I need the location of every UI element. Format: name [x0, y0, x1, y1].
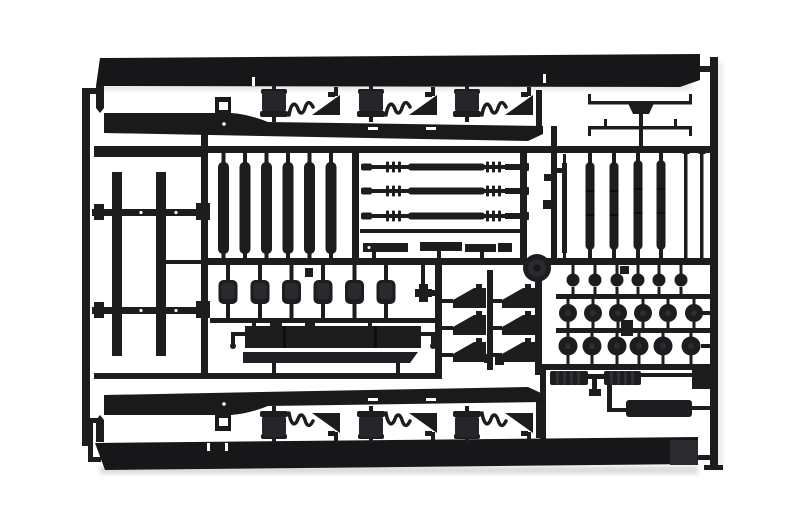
wheel-r3-c6-hub [688, 343, 694, 349]
wheel-r1-c1 [567, 274, 580, 287]
spring-3-stem-bottom [265, 252, 269, 260]
flat-tool-3 [465, 244, 496, 252]
runner-muffler [540, 364, 712, 370]
blade-tip-stem [536, 90, 542, 126]
wheel-r2-c2-hub [590, 310, 596, 316]
rail-d-block-2 [543, 200, 552, 209]
spring-1-stem-bottom [222, 252, 226, 260]
tool-stem-3 [480, 252, 484, 258]
hang-cup-3-foot [465, 116, 469, 122]
bottom-triangle-2 [409, 413, 437, 433]
bottom-squiggle-1 [289, 413, 313, 425]
flat-tool-2 [420, 242, 462, 251]
runner-wheels-a [556, 294, 712, 299]
muffler-ribbed-1 [550, 371, 588, 385]
cup-1-stem-bottom [226, 303, 230, 318]
bottom-strip-stem [697, 455, 710, 460]
wheel-r2-c4-hub [640, 310, 646, 316]
cup-5-stem-top [353, 265, 357, 281]
fender-top-window [219, 102, 228, 110]
vspring-2-seg-a [610, 190, 619, 192]
wheel-r2-c4-stem-bottom [642, 322, 645, 329]
rod-3-ring-e [492, 211, 495, 222]
wheel-grid-stem-right-1 [702, 311, 710, 315]
rail-d [551, 126, 557, 265]
wheel-grid-block [621, 320, 633, 336]
cups-runner-stem-2 [368, 323, 372, 328]
wheel-r1-c3-stem-top [616, 264, 619, 274]
rod-3-ring-c [398, 211, 401, 222]
hang-triangle-2-stem [431, 87, 435, 96]
wheel-r3-c5-stem-bottom [662, 355, 665, 365]
fender-bottom-window [219, 418, 228, 426]
rod-3-cap-left [361, 213, 372, 220]
rod-2-cap-left [361, 188, 372, 195]
cup-6-stem-bottom [384, 303, 388, 318]
muffler-l-runner-v [607, 385, 612, 412]
hull-hook-right-b [431, 332, 435, 344]
rod-1-ring-d [486, 162, 489, 173]
hull-upper-tab-1 [270, 321, 282, 327]
axle-bar-1 [112, 172, 122, 356]
rod-2-ring-e [492, 186, 495, 197]
muffler-2-rib-d [631, 371, 634, 385]
vspring-4-body [657, 160, 666, 250]
wheel-r1-c2 [589, 274, 602, 287]
runner-mid [201, 258, 712, 265]
muffler-1-rib-c [570, 371, 573, 385]
hang-triangle-1-nub [328, 92, 335, 97]
muffler-2-rib-b [617, 371, 620, 385]
fender-top-slit-1 [368, 127, 378, 130]
rod-3-ring-f [498, 211, 501, 222]
wheel-r1-c5-stem-top [658, 264, 661, 274]
hull-lower-stem-2 [396, 363, 400, 374]
pin-mark-1 [139, 211, 142, 214]
bottom-squiggle-2 [386, 413, 410, 425]
wheel-r2-c1-stem-bottom [567, 322, 570, 329]
t-tick-1 [588, 94, 591, 102]
wheel-r1-c3 [611, 274, 624, 287]
spring-6-body [326, 162, 337, 254]
wedge-2-stem-left [442, 326, 453, 330]
bottom-triangle-1-stem [334, 432, 338, 441]
vspring-2-stem-bottom [612, 248, 616, 260]
wedge-3-left [453, 342, 486, 362]
side-rod [562, 163, 567, 253]
crossbar-1-end-right [196, 203, 210, 220]
muffler-l-runner-h [607, 408, 627, 412]
hang-triangle-1 [312, 95, 340, 115]
model-kit-sprue-photo [0, 0, 800, 530]
wedge-2-right-nub [525, 311, 531, 315]
wheel-r3-c4-stem-bottom [638, 355, 641, 365]
top-strip [96, 54, 700, 87]
thin-rod-1 [684, 152, 688, 260]
rod-2-muzzle [524, 187, 529, 195]
wheel-r1-c4-stem-bottom [637, 287, 640, 295]
hull-upper-seam-1 [283, 326, 286, 348]
bottom-left-bracket-b [88, 457, 101, 462]
thin-rod-1-cap [683, 150, 690, 154]
cup-6-face [380, 283, 393, 299]
bottom-triangle-1 [312, 413, 340, 433]
rod-2-ring-a [386, 186, 389, 197]
cup-2-stem-top [258, 265, 262, 281]
photo-canvas [0, 0, 800, 530]
cup-5-face [348, 283, 361, 299]
wheel-r2-c6-stem-bottom [693, 322, 696, 329]
wheel-r1-c5-stem-bottom [658, 287, 661, 295]
wheel-r2-c3-hub [615, 310, 621, 316]
top-strip-slit-2 [543, 74, 546, 83]
crossbar-1-end-left [94, 204, 104, 220]
hull-part-lower [243, 352, 418, 363]
wheel-r1-c4 [632, 274, 645, 287]
wheel-r2-c1-hub [565, 310, 571, 316]
hull-upper-seam-2 [374, 326, 377, 348]
wheel-r1-c6-stem-bottom [680, 287, 683, 295]
vspring-1-seg-b [586, 214, 595, 216]
bottom-blade-tip-stem [536, 402, 542, 438]
hull-lower-stem-1 [272, 363, 276, 374]
hang-cup-2-foot [369, 116, 373, 122]
top-strip-slit-1 [252, 77, 255, 86]
rod-2-ring-c [398, 186, 401, 197]
wedge-1-right-nub [525, 284, 531, 288]
rod-1-tip [505, 164, 526, 170]
cups-small-block [305, 268, 313, 277]
spring-3-body [261, 162, 272, 254]
wheel-r1-c3-stem-bottom [616, 287, 619, 295]
fender-bottom-pin [222, 402, 226, 406]
cross-part-nub [430, 290, 436, 296]
rod-2-ring-d [486, 186, 489, 197]
t-tick-3 [604, 119, 607, 127]
hang-triangle-1-stem [334, 87, 338, 96]
wheel-r2-c5-stem-bottom [667, 322, 670, 329]
rod-3-sleeve [408, 213, 485, 220]
wedge-1-left-nub [476, 284, 482, 288]
bottom-triangle-2-stem [431, 432, 435, 441]
vspring-1-stem-bottom [588, 248, 592, 260]
crossbar-1 [92, 209, 210, 216]
drum-3-body [455, 415, 479, 437]
wheel-r2-c5-hub [665, 310, 671, 316]
wheel-r2-c3-stem-bottom [617, 322, 620, 329]
vspring-3-stem-bottom [636, 248, 640, 260]
cup-3-stem-top [290, 265, 294, 281]
vspring-2-seg-b [610, 214, 619, 216]
vspring-1-stem-top [588, 150, 592, 164]
cup-3-stem-bottom [290, 303, 294, 318]
rod-1-ring-a [386, 162, 389, 173]
axle-bar-2 [156, 172, 166, 356]
wheel-r3-c2-stem-bottom [591, 355, 594, 365]
muffler-1-rib-a [556, 371, 559, 385]
wheel-r1-c6 [675, 274, 688, 287]
vspring-4-seg-b [657, 212, 666, 214]
bottom-strip-slit-2 [225, 443, 228, 451]
wedge-bit-2 [495, 356, 504, 365]
rod-2-ring-b [392, 186, 395, 197]
wheel-r1-c4-stem-top [637, 264, 640, 274]
cross-part-stem [421, 265, 425, 284]
wheel-r1-c5 [653, 274, 666, 287]
bottom-triangle-1-nub [328, 431, 335, 436]
rods-thin-runner [360, 229, 522, 233]
rod-1-sleeve [408, 164, 485, 171]
wheel-r1-c1-stem-bottom [572, 287, 575, 295]
spring-5-stem-bottom [308, 252, 312, 260]
sprue-mirrored-group [96, 387, 543, 443]
wedge-2-right [502, 315, 535, 335]
hang-triangle-2-nub [425, 92, 432, 97]
flat-tool-4 [498, 243, 512, 252]
rod-3-muzzle [524, 212, 529, 220]
hang-triangle-3-stem [527, 87, 531, 96]
wedge-1-stem-left [442, 299, 453, 303]
bottom-squiggle-3 [482, 413, 506, 425]
wheel-grid-stem-right-2 [701, 344, 710, 348]
muffler-1-rib-b [563, 371, 566, 385]
hang-triangle-2 [409, 95, 437, 115]
t-pedestal [627, 101, 655, 114]
vspring-3-seg-b [634, 212, 643, 214]
muffler-plain [626, 400, 692, 417]
t-tick-6 [689, 129, 692, 136]
muffler-2-rib-a [610, 371, 613, 385]
spring-1-body [218, 162, 229, 254]
wedge-2-stem-mid [493, 326, 502, 330]
wheel-r1-c2-stem-top [594, 264, 597, 274]
rod-1-ring-e [492, 162, 495, 173]
tool-stem-1 [372, 252, 376, 258]
wedge-3-right-nub [525, 338, 531, 342]
drum-1-body [262, 415, 286, 437]
wedge-3-right [502, 342, 535, 362]
hang-squiggle-3 [482, 103, 506, 115]
rod-1-ring-f [498, 162, 501, 173]
wheel-r3-c3-hub [614, 343, 620, 349]
tool-stem-2 [437, 251, 441, 258]
t-tick-4 [674, 119, 677, 127]
wheel-grid-tab [620, 266, 629, 274]
spring-4-body [283, 162, 294, 254]
wheel-r2-c2-stem-bottom [592, 322, 595, 329]
hang-triangle-3-nub [521, 92, 528, 97]
vspring-4-stem-bottom [659, 248, 663, 260]
wedge-bit-1 [484, 354, 493, 363]
wedge-2-left-nub [476, 311, 482, 315]
rod-2-tip [505, 188, 526, 194]
crossbar-2 [92, 307, 210, 314]
bottom-left-bracket-v [88, 418, 93, 462]
cup-2-face [254, 283, 267, 299]
left-rail-top-hook [82, 88, 96, 94]
t-stem [639, 114, 643, 146]
vspring-1-seg-a [586, 190, 595, 192]
vspring-3-body [634, 160, 643, 250]
spring-2-body [240, 162, 251, 254]
hang-cup-3-body [455, 91, 479, 113]
cup-4-stem-top [321, 265, 325, 281]
runner-cups [210, 318, 442, 323]
fender-top-pin [222, 122, 226, 126]
wedge-3-left-nub [476, 338, 482, 342]
fender-top-slit-2 [426, 127, 436, 130]
pin-mark-4 [174, 309, 177, 312]
rail-b [352, 146, 359, 265]
bottom-strip [95, 437, 698, 470]
wheel-r1-c1-stem-top [572, 264, 575, 274]
cross-part-h [415, 289, 432, 297]
cup-3-face [285, 283, 298, 299]
hang-triangle-3 [505, 95, 533, 115]
spring-6-stem-bottom [329, 252, 333, 260]
top-strip-tab [96, 86, 104, 113]
hang-cup-2-body [359, 91, 383, 113]
cup-1-stem-top [226, 265, 230, 281]
rod-3-tip [505, 213, 526, 219]
muffler-1-rib-d [577, 371, 580, 385]
thin-rod-2 [700, 152, 704, 260]
vspring-2-body [610, 162, 619, 250]
wheel-r3-c5-hub [660, 343, 666, 349]
idler-disc-hub [534, 265, 541, 272]
bottom-triangle-2-nub [425, 431, 432, 436]
wheel-r3-c1-hub [565, 343, 571, 349]
runner-wheels-b [556, 328, 712, 333]
vspring-4-seg-a [657, 188, 666, 190]
wedge-1-right [502, 288, 535, 308]
spring-4-stem-bottom [286, 252, 290, 260]
drum-2-foot [369, 406, 373, 412]
runner-lower [94, 373, 442, 379]
hull-upper-tab-2 [305, 321, 315, 327]
hang-cup-1-foot [272, 116, 276, 122]
cups-runner-stem-1 [252, 323, 256, 328]
rod-1-cap-left [361, 164, 372, 171]
drum-2-body [359, 415, 383, 437]
rod-3-ring-a [386, 211, 389, 222]
cup-6-stem-top [384, 265, 388, 281]
bottom-strip-tab [96, 415, 104, 442]
wheel-r1-c6-stem-top [680, 264, 683, 274]
wheel-r3-c2-hub [589, 343, 595, 349]
spring-2-stem-bottom [243, 252, 247, 260]
hang-cup-1-body [262, 91, 286, 113]
hang-squiggle-1 [289, 103, 313, 115]
wheel-r3-c3-stem-bottom [616, 355, 619, 365]
rail-d-block-1 [544, 174, 551, 181]
flat-tool-1-pin [368, 246, 371, 249]
thin-rod-2-cap [699, 150, 706, 154]
wedge-3-stem-left [442, 353, 453, 357]
left-thin-runner [165, 260, 205, 264]
rod-1-ring-c [398, 162, 401, 173]
wheel-r1-c2-stem-bottom [594, 287, 597, 295]
hang-squiggle-2 [386, 103, 410, 115]
left-rail [82, 88, 90, 446]
cup-4-stem-bottom [321, 303, 325, 318]
bottom-strip-light-block [670, 440, 698, 465]
pin-mark-3 [139, 309, 142, 312]
spring-5-body [304, 162, 315, 254]
muffler-ribbed-2 [604, 371, 641, 385]
cup-1-face [222, 283, 235, 299]
hull-hook-left-ball [230, 343, 236, 349]
left-section-runner [94, 151, 208, 157]
bottom-triangle-3 [505, 413, 533, 433]
rod-2-ring-f [498, 186, 501, 197]
rod-2-sleeve [408, 188, 485, 195]
rod-3-ring-b [392, 211, 395, 222]
crossbar-2-end-right [196, 301, 210, 318]
bottom-triangle-3-stem [527, 432, 531, 441]
muffler-row-runner [641, 373, 692, 377]
cup-2-stem-bottom [258, 303, 262, 318]
muffler-connector [588, 374, 604, 379]
right-rail-foot [704, 465, 723, 470]
muffler-2-rib-c [624, 371, 627, 385]
crossbar-2-end-left [94, 302, 104, 318]
muffler-plain-stem [692, 406, 710, 410]
t-tick-5 [588, 129, 591, 136]
drum-3-foot [465, 406, 469, 412]
hull-hook-right-ball [430, 343, 436, 349]
wedge-1-stem-mid [493, 299, 502, 303]
rod-3-ring-d [486, 211, 489, 222]
cup-5-stem-bottom [353, 303, 357, 318]
wheel-r3-c1-stem-bottom [567, 355, 570, 365]
t-tick-2 [689, 94, 692, 102]
side-rod-stem-top [563, 154, 566, 164]
vspring-3-seg-a [634, 188, 643, 190]
fender-bottom-slit-2 [426, 398, 436, 401]
vspring-2-stem-top [612, 150, 616, 164]
fender-bottom-slit-1 [368, 398, 378, 401]
wedge-2-left [453, 315, 486, 335]
side-rod-nub [557, 168, 562, 173]
pin-mark-2 [174, 211, 177, 214]
hull-part-upper [245, 326, 421, 348]
wedge-1-left [453, 288, 486, 308]
muffler-end-block [692, 368, 712, 389]
wheel-r3-c4-hub [636, 343, 642, 349]
rod-1-ring-b [392, 162, 395, 173]
rail-e [435, 258, 442, 378]
wheel-r2-c6-hub [691, 310, 697, 316]
right-rail-top-tab [698, 66, 712, 72]
rail-a [201, 130, 208, 378]
cup-4-face [317, 283, 330, 299]
muffler-connector-foot [589, 389, 601, 396]
side-rod-stem-bottom [563, 252, 566, 260]
rod-1-muzzle [524, 163, 529, 171]
bottom-triangle-3-nub [521, 431, 528, 436]
hull-hook-left-b [231, 332, 235, 344]
drum-1-foot [272, 406, 276, 412]
wheel-r3-c6-stem-bottom [690, 355, 693, 365]
bottom-strip-slit-1 [207, 443, 210, 451]
vspring-1-body [586, 162, 595, 250]
